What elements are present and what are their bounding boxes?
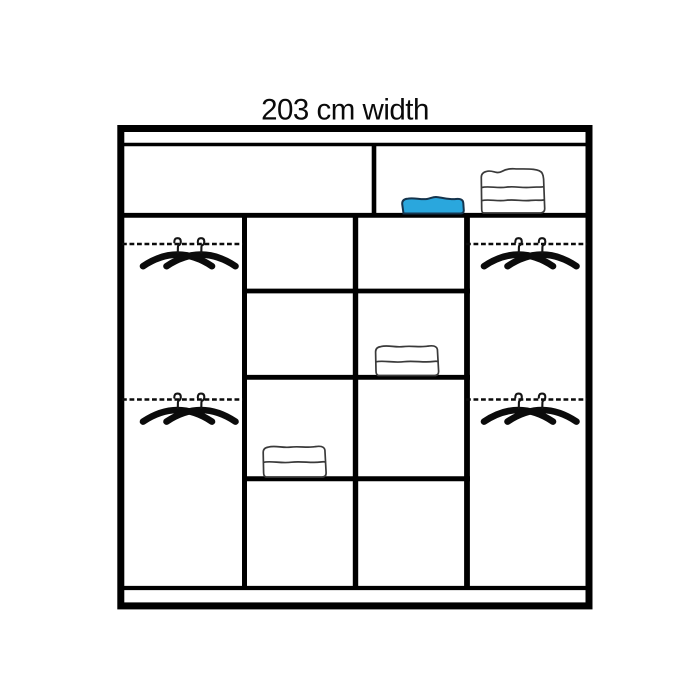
svg-text:203 cm width: 203 cm width	[261, 94, 429, 127]
